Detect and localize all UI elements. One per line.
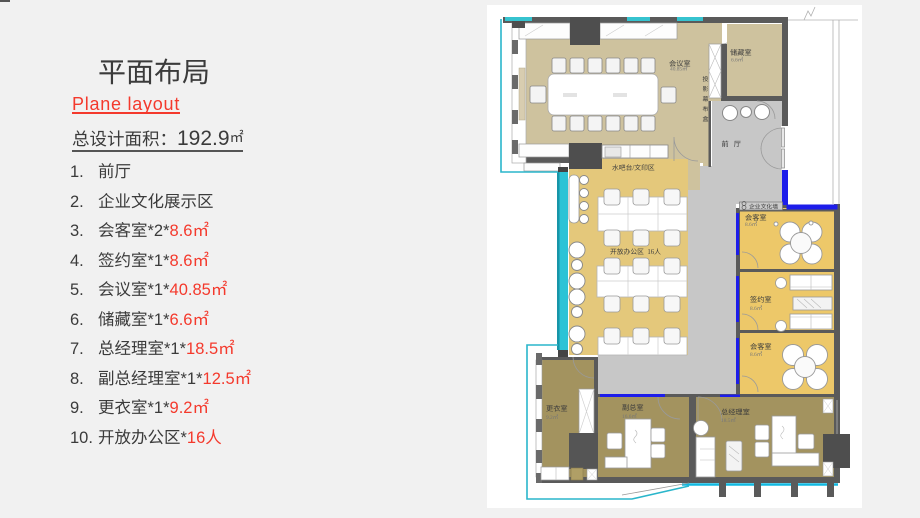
svg-text:8.6㎡: 8.6㎡ (750, 304, 763, 312)
svg-text:前厅: 前厅 (722, 140, 746, 150)
svg-text:9.2㎡: 9.2㎡ (546, 413, 559, 421)
svg-text:6.6㎡: 6.6㎡ (731, 56, 744, 64)
svg-text:投影幕布盒: 投影幕布盒 (701, 74, 710, 124)
svg-text:40.85㎡: 40.85㎡ (670, 65, 688, 73)
svg-text:8.6㎡: 8.6㎡ (750, 350, 763, 358)
svg-text:水吧台/文印区: 水吧台/文印区 (612, 162, 655, 172)
svg-text:开放办公区 16人: 开放办公区 16人 (610, 246, 661, 256)
svg-text:18.5㎡: 18.5㎡ (721, 416, 736, 424)
svg-text:企业文化墙: 企业文化墙 (749, 202, 778, 211)
svg-text:16.6㎡: 16.6㎡ (622, 412, 637, 420)
svg-text:8.6㎡: 8.6㎡ (745, 220, 758, 228)
